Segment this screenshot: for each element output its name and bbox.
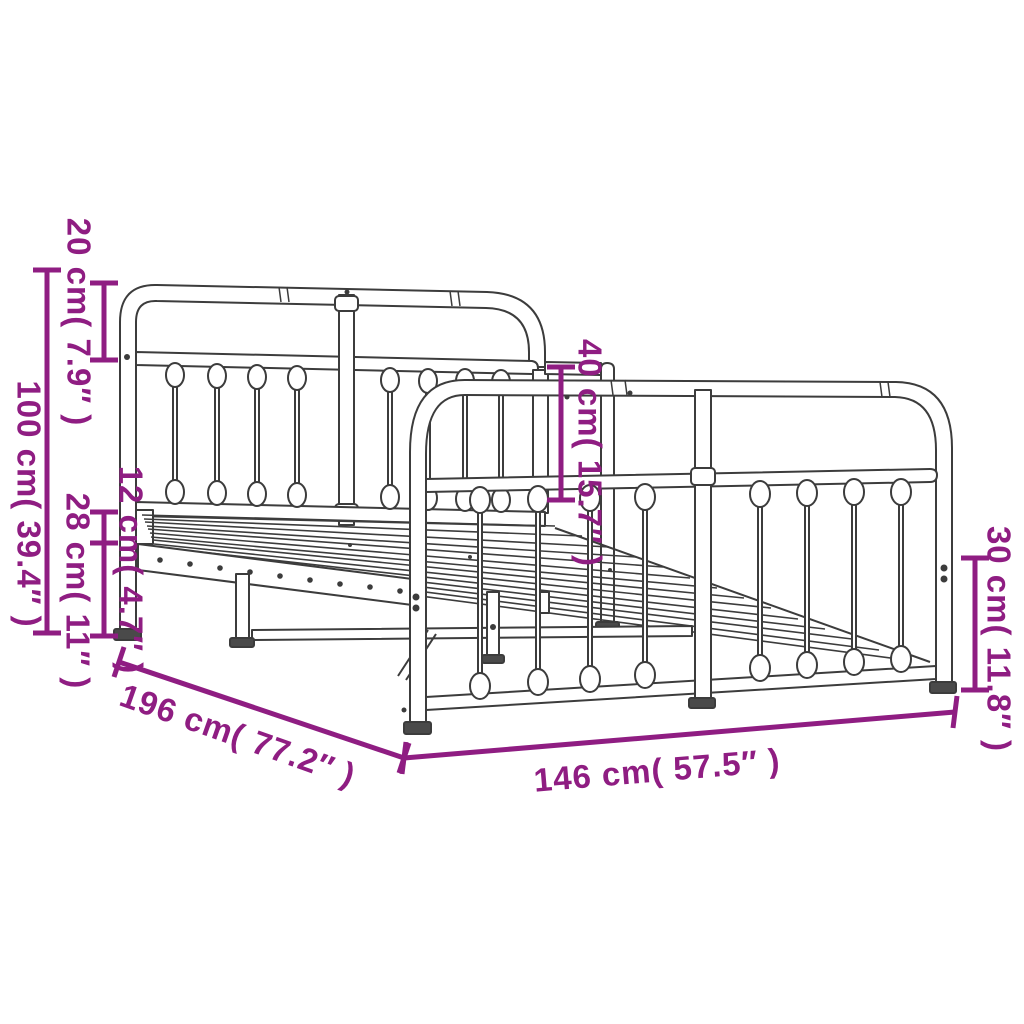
label-side-rail-height: 12 cm( 4.7″ )	[113, 466, 150, 675]
label-headboard-top-section: 20 cm( 7.9″ )	[61, 218, 98, 427]
label-under-bed-clearance: 28 cm( 11″ )	[60, 493, 97, 690]
footboard-spindles	[470, 479, 911, 699]
product-dimension-image: 100 cm( 39.4″ ) 20 cm( 7.9″ ) 12 cm( 4.7…	[0, 0, 1024, 1024]
bed-frame-illustration	[114, 285, 956, 734]
bed-dimension-diagram: 100 cm( 39.4″ ) 20 cm( 7.9″ ) 12 cm( 4.7…	[0, 0, 1024, 1024]
label-bed-width: 146 cm( 57.5″ )	[532, 741, 782, 799]
label-overall-height: 100 cm( 39.4″ )	[11, 380, 48, 627]
label-footboard-leg-height: 30 cm( 11.8″ )	[981, 526, 1018, 752]
footboard	[402, 380, 957, 734]
label-footboard-upper-section: 40 cm( 15.7″ )	[572, 339, 609, 567]
label-bed-length: 196 cm( 77.2″ )	[115, 676, 360, 793]
